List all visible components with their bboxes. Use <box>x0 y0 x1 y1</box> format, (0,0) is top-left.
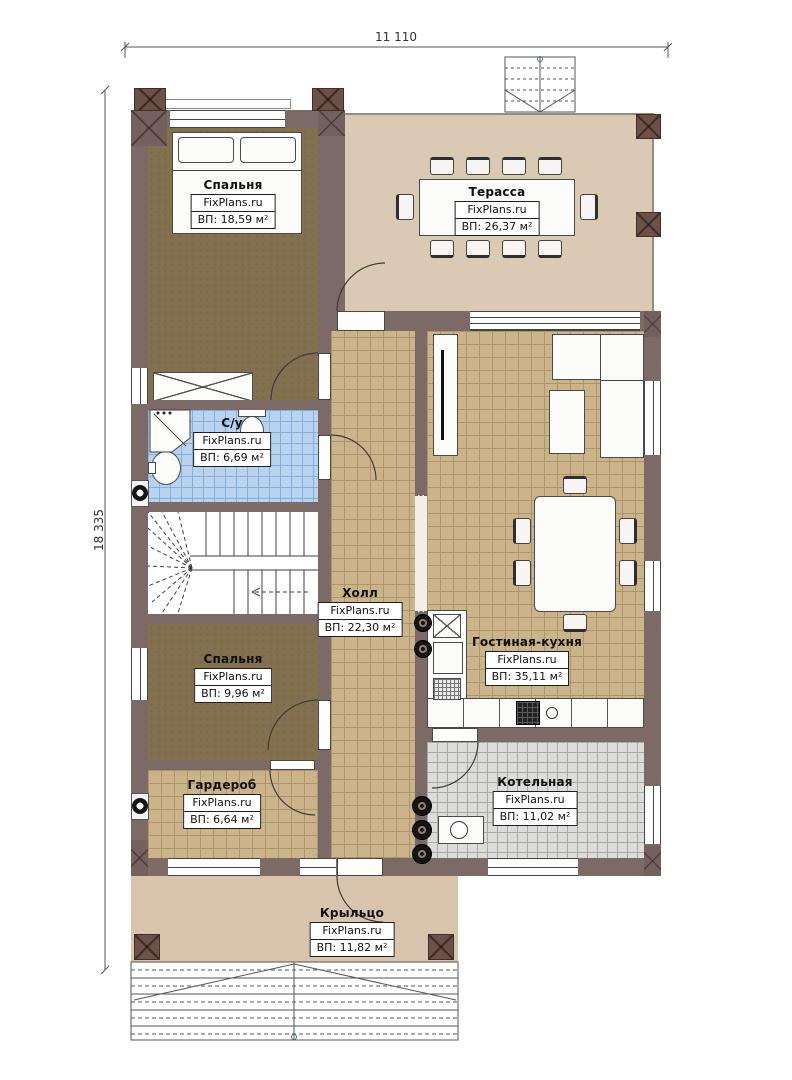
room-brand: FixPlans.ru <box>319 603 402 620</box>
room-label-boiler: Котельная FixPlans.ru ВП: 11,02 м² <box>493 775 578 826</box>
door-bedroom-1 <box>318 353 331 400</box>
room-box: FixPlans.ru ВП: 11,82 м² <box>310 922 395 957</box>
room-name: Холл <box>342 586 378 600</box>
stove-burner <box>414 614 432 632</box>
window <box>644 381 661 455</box>
room-name: Спальня <box>204 652 263 666</box>
room-brand: FixPlans.ru <box>195 669 271 686</box>
door-entrance <box>337 858 383 876</box>
room-box: FixPlans.ru ВП: 22,30 м² <box>318 602 403 637</box>
room-area: ВП: 22,30 м² <box>319 620 402 636</box>
corner-column <box>131 110 167 146</box>
room-label-hall: Холл FixPlans.ru ВП: 22,30 м² <box>318 586 403 637</box>
chair <box>466 157 490 175</box>
corner-column <box>318 110 345 136</box>
chair <box>502 240 526 258</box>
dining-table <box>534 496 616 612</box>
window <box>644 786 661 844</box>
sofa-cushion-line <box>600 380 644 381</box>
chair <box>466 240 490 258</box>
floor-hall <box>331 311 415 858</box>
dimension-width: 11 110 <box>375 30 417 44</box>
room-brand: FixPlans.ru <box>486 652 569 669</box>
room-label-bedroom-1: Спальня FixPlans.ru ВП: 18,59 м² <box>191 178 276 229</box>
room-label-terrace: Терасса FixPlans.ru ВП: 26,37 м² <box>455 185 540 236</box>
door-boiler <box>432 728 478 742</box>
chair <box>538 157 562 175</box>
chair <box>513 518 531 544</box>
floor-staircase <box>148 512 318 614</box>
room-area: ВП: 35,11 м² <box>486 669 569 685</box>
room-label-porch: Крыльцо FixPlans.ru ВП: 11,82 м² <box>310 906 395 957</box>
closet <box>153 372 253 402</box>
coffee-table <box>549 390 585 454</box>
chair <box>619 518 637 544</box>
room-brand: FixPlans.ru <box>184 795 260 812</box>
room-label-wardrobe: Гардероб FixPlans.ru ВП: 6,64 м² <box>183 778 261 829</box>
chair <box>580 194 598 220</box>
dimension-height: 18 335 <box>92 509 106 551</box>
terrace-column <box>636 212 661 237</box>
room-box: FixPlans.ru ВП: 35,11 м² <box>485 651 570 686</box>
chair <box>396 194 414 220</box>
porch-stairs <box>131 962 458 1040</box>
pilaster <box>134 88 166 111</box>
window <box>644 561 661 611</box>
room-name: Гардероб <box>188 778 257 792</box>
room-area: ВП: 26,37 м² <box>456 219 539 235</box>
chair <box>430 157 454 175</box>
washer-door <box>450 821 468 839</box>
door-wardrobe <box>270 760 315 770</box>
room-name: Терасса <box>469 185 526 199</box>
room-brand: FixPlans.ru <box>194 433 270 450</box>
room-area: ВП: 11,02 м² <box>494 809 577 825</box>
corner-column <box>644 311 661 337</box>
corner-column <box>131 840 148 876</box>
window <box>168 858 260 876</box>
tv <box>441 350 444 440</box>
room-label-living-kitchen: Гостиная-кухня FixPlans.ru ВП: 35,11 м² <box>472 635 582 686</box>
pillow <box>240 137 296 163</box>
room-area: ВП: 11,82 м² <box>311 940 394 956</box>
room-area: ВП: 6,69 м² <box>194 450 270 466</box>
boiler-unit <box>412 796 432 816</box>
kitchen-sink-bowl <box>546 707 558 719</box>
window <box>300 858 336 876</box>
chair <box>502 157 526 175</box>
room-area: ВП: 9,96 м² <box>195 686 271 702</box>
room-box: FixPlans.ru ВП: 11,02 м² <box>493 791 578 826</box>
sewer-pipe <box>132 798 148 814</box>
stove-burner <box>414 640 432 658</box>
blanket-line <box>172 170 302 171</box>
boiler-unit <box>412 820 432 840</box>
window-sill <box>164 99 291 109</box>
window <box>170 110 285 128</box>
door-bedroom-2 <box>318 700 331 750</box>
room-box: FixPlans.ru ВП: 6,69 м² <box>193 432 271 467</box>
boiler-unit <box>412 844 432 864</box>
pilaster <box>312 88 344 111</box>
porch-column <box>134 934 160 960</box>
chair <box>538 240 562 258</box>
door-bathroom <box>318 435 331 480</box>
sofa-right <box>600 334 644 458</box>
window <box>131 648 148 700</box>
corner-column <box>644 846 661 876</box>
sewer-pipe <box>132 485 148 501</box>
room-box: FixPlans.ru ВП: 6,64 м² <box>183 794 261 829</box>
room-brand: FixPlans.ru <box>311 923 394 940</box>
dishwasher <box>433 678 461 700</box>
room-label-bathroom: С/у FixPlans.ru ВП: 6,69 м² <box>193 416 271 467</box>
wall-bathroom-top <box>148 400 318 410</box>
wall-bedroom2-top <box>148 614 318 624</box>
room-label-bedroom-2: Спальня FixPlans.ru ВП: 9,96 м² <box>194 652 272 703</box>
room-brand: FixPlans.ru <box>494 792 577 809</box>
floor-porch <box>131 876 458 962</box>
room-brand: FixPlans.ru <box>192 195 275 212</box>
chair <box>430 240 454 258</box>
pillow <box>178 137 234 163</box>
fridge <box>433 642 463 674</box>
terrace-stairs <box>505 57 575 113</box>
room-brand: FixPlans.ru <box>456 202 539 219</box>
room-name: Крыльцо <box>320 906 384 920</box>
chair <box>563 614 587 632</box>
floor-plan: 11 110 18 335 Спальня FixPlans.ru ВП: 18… <box>0 0 792 1080</box>
room-name: Котельная <box>497 775 572 789</box>
room-box: FixPlans.ru ВП: 26,37 м² <box>455 201 540 236</box>
tv-cabinet <box>433 334 458 456</box>
room-name: Спальня <box>204 178 263 192</box>
terrace-column <box>636 114 661 139</box>
kitchen-sink-small <box>433 614 461 638</box>
chair <box>513 560 531 586</box>
chair <box>563 476 587 494</box>
door-terrace <box>337 311 385 331</box>
sink-tap <box>148 462 156 474</box>
opening-hall-living <box>415 495 427 612</box>
window <box>488 858 578 876</box>
porch-column <box>428 934 454 960</box>
kitchen-hob <box>516 701 540 725</box>
room-name: Гостиная-кухня <box>472 635 582 649</box>
wall-bathroom-bottom <box>148 502 318 512</box>
room-box: FixPlans.ru ВП: 9,96 м² <box>194 668 272 703</box>
room-area: ВП: 18,59 м² <box>192 212 275 228</box>
room-area: ВП: 6,64 м² <box>184 812 260 828</box>
chair <box>619 560 637 586</box>
window <box>131 368 148 404</box>
window-glass-door <box>470 311 640 331</box>
room-box: FixPlans.ru ВП: 18,59 м² <box>191 194 276 229</box>
room-name: С/у <box>221 416 243 430</box>
wall-bedroom1-terrace <box>318 110 345 311</box>
